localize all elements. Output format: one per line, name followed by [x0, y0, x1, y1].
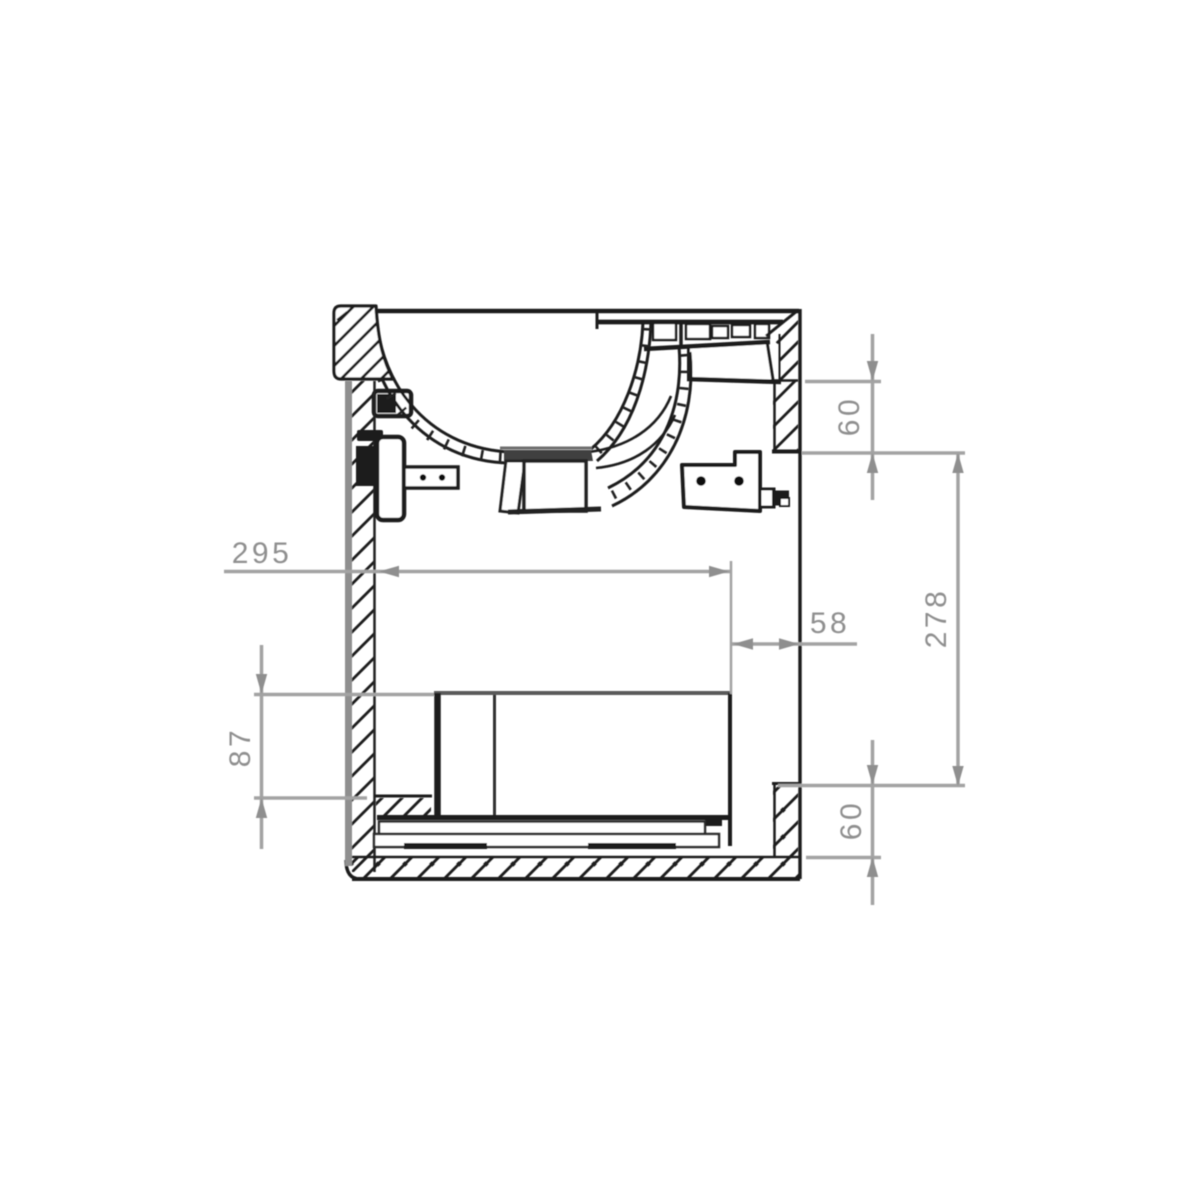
- svg-text:295: 295: [232, 537, 293, 570]
- svg-text:87: 87: [224, 727, 257, 767]
- svg-text:60: 60: [835, 800, 868, 840]
- svg-text:58: 58: [810, 607, 850, 640]
- svg-text:60: 60: [833, 396, 866, 436]
- svg-text:278: 278: [920, 588, 953, 649]
